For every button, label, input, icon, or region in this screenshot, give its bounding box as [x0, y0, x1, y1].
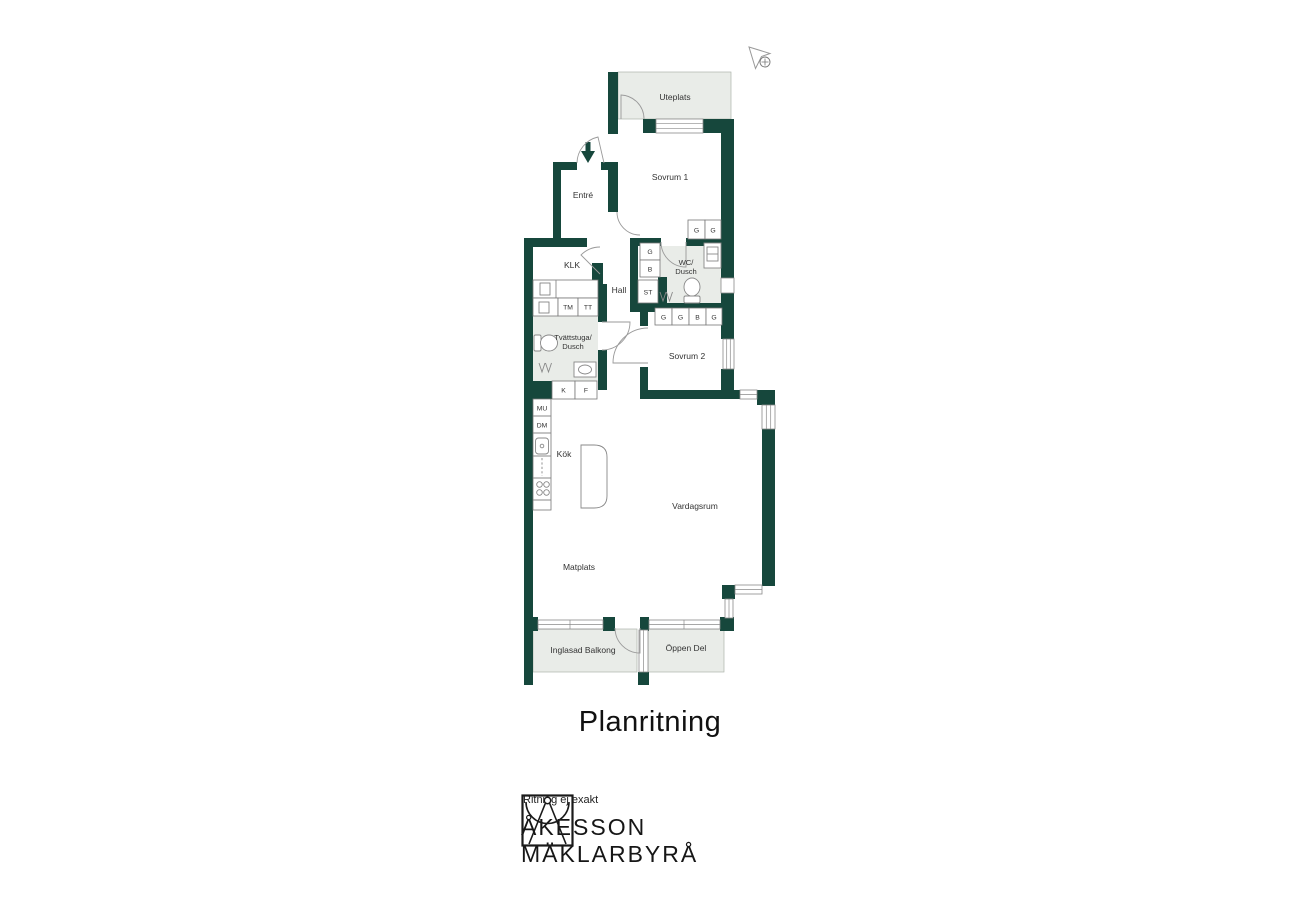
wall-segment	[528, 617, 538, 631]
room-label-uteplats: Uteplats	[659, 92, 690, 102]
cabinet-label: G	[661, 315, 666, 322]
room-label-inglasad-balkong: Inglasad Balkong	[550, 645, 615, 655]
room-label-klk: KLK	[564, 260, 580, 270]
footer: Ritning ej exakt ÅKESSON MÄKLARBYRÅ	[521, 794, 698, 867]
wall-segment	[762, 429, 775, 586]
wardrobe-rail	[540, 283, 550, 295]
window	[656, 119, 703, 133]
room-label-oppen-del: Öppen Del	[666, 643, 707, 653]
wall-segment	[721, 293, 734, 339]
cabinet-label: G	[678, 315, 683, 322]
appliance-label: TT	[584, 305, 592, 312]
wall-niche	[721, 278, 734, 293]
wall-segment	[721, 119, 734, 278]
laundry-sink-icon	[574, 362, 596, 377]
wall-segment	[598, 284, 607, 322]
room-label-hall: Hall	[612, 285, 627, 295]
wall-segment	[553, 162, 577, 170]
wall-segment	[643, 119, 656, 133]
north-compass-arrow-icon	[749, 47, 770, 69]
cabinet-label: B	[695, 315, 700, 322]
sovrum2-door-arc	[613, 328, 648, 363]
wall-segment	[608, 162, 618, 212]
wall-segment	[524, 381, 553, 399]
room-label-entre: Entré	[573, 190, 594, 200]
room-label-vardagsrum: Vardagsrum	[672, 501, 718, 511]
wall-segment	[757, 390, 775, 405]
wall-segment	[640, 390, 740, 399]
page-title: Planritning	[0, 706, 1300, 739]
wall-segment	[598, 350, 607, 390]
floorplan-drawing: G G G B ST G G B G TM TT K F MU DM	[0, 0, 1300, 919]
wall-segment	[638, 672, 649, 685]
brand-logo-icon	[521, 794, 574, 847]
appliance-label: F	[584, 388, 588, 395]
kitchen-island	[581, 445, 607, 508]
window	[762, 405, 775, 429]
room-label-kok: Kök	[557, 449, 572, 459]
toilet-tank-icon	[684, 296, 700, 303]
room-label-wc2: Dusch	[675, 267, 697, 276]
wall-segment	[640, 617, 649, 631]
appliance-label: K	[561, 388, 566, 395]
cabinet-label: G	[711, 315, 716, 322]
wall-segment	[720, 617, 734, 631]
appliance-label: TM	[563, 305, 573, 312]
cabinet-label: B	[648, 267, 653, 274]
room-label-matplats: Matplats	[563, 562, 595, 572]
appliance-label: DM	[537, 423, 548, 430]
kitchen-sink-icon	[536, 438, 549, 454]
room-label-wc: WC/	[679, 258, 695, 267]
room-label-sovrum2: Sovrum 2	[669, 351, 706, 361]
room-label-tvattstuga: Tvättstuga/	[554, 333, 592, 342]
floorplan-page: G G G B ST G G B G TM TT K F MU DM	[0, 0, 1300, 919]
wall-segment	[630, 238, 638, 304]
window	[723, 339, 734, 369]
sovrum1-door-arc	[617, 212, 640, 235]
wall-segment	[722, 585, 735, 599]
room-label-sovrum1: Sovrum 1	[652, 172, 689, 182]
wall-segment	[603, 617, 615, 631]
wall-segment	[640, 312, 648, 326]
cabinet-label: G	[647, 249, 652, 256]
cabinet-label: G	[694, 228, 699, 235]
cabinet-label: ST	[644, 290, 653, 297]
entry-direction-arrow-icon	[581, 142, 595, 163]
toilet-icon	[684, 278, 700, 296]
room-label-tvattstuga2: Dusch	[562, 342, 584, 351]
wall-segment	[553, 162, 561, 242]
cabinet-label: G	[710, 228, 715, 235]
appliance-label: MU	[537, 406, 548, 413]
wall-segment	[608, 72, 618, 134]
toilet-tank-icon	[534, 335, 541, 351]
laundry-rail	[539, 302, 549, 313]
wall-segment	[524, 238, 587, 247]
